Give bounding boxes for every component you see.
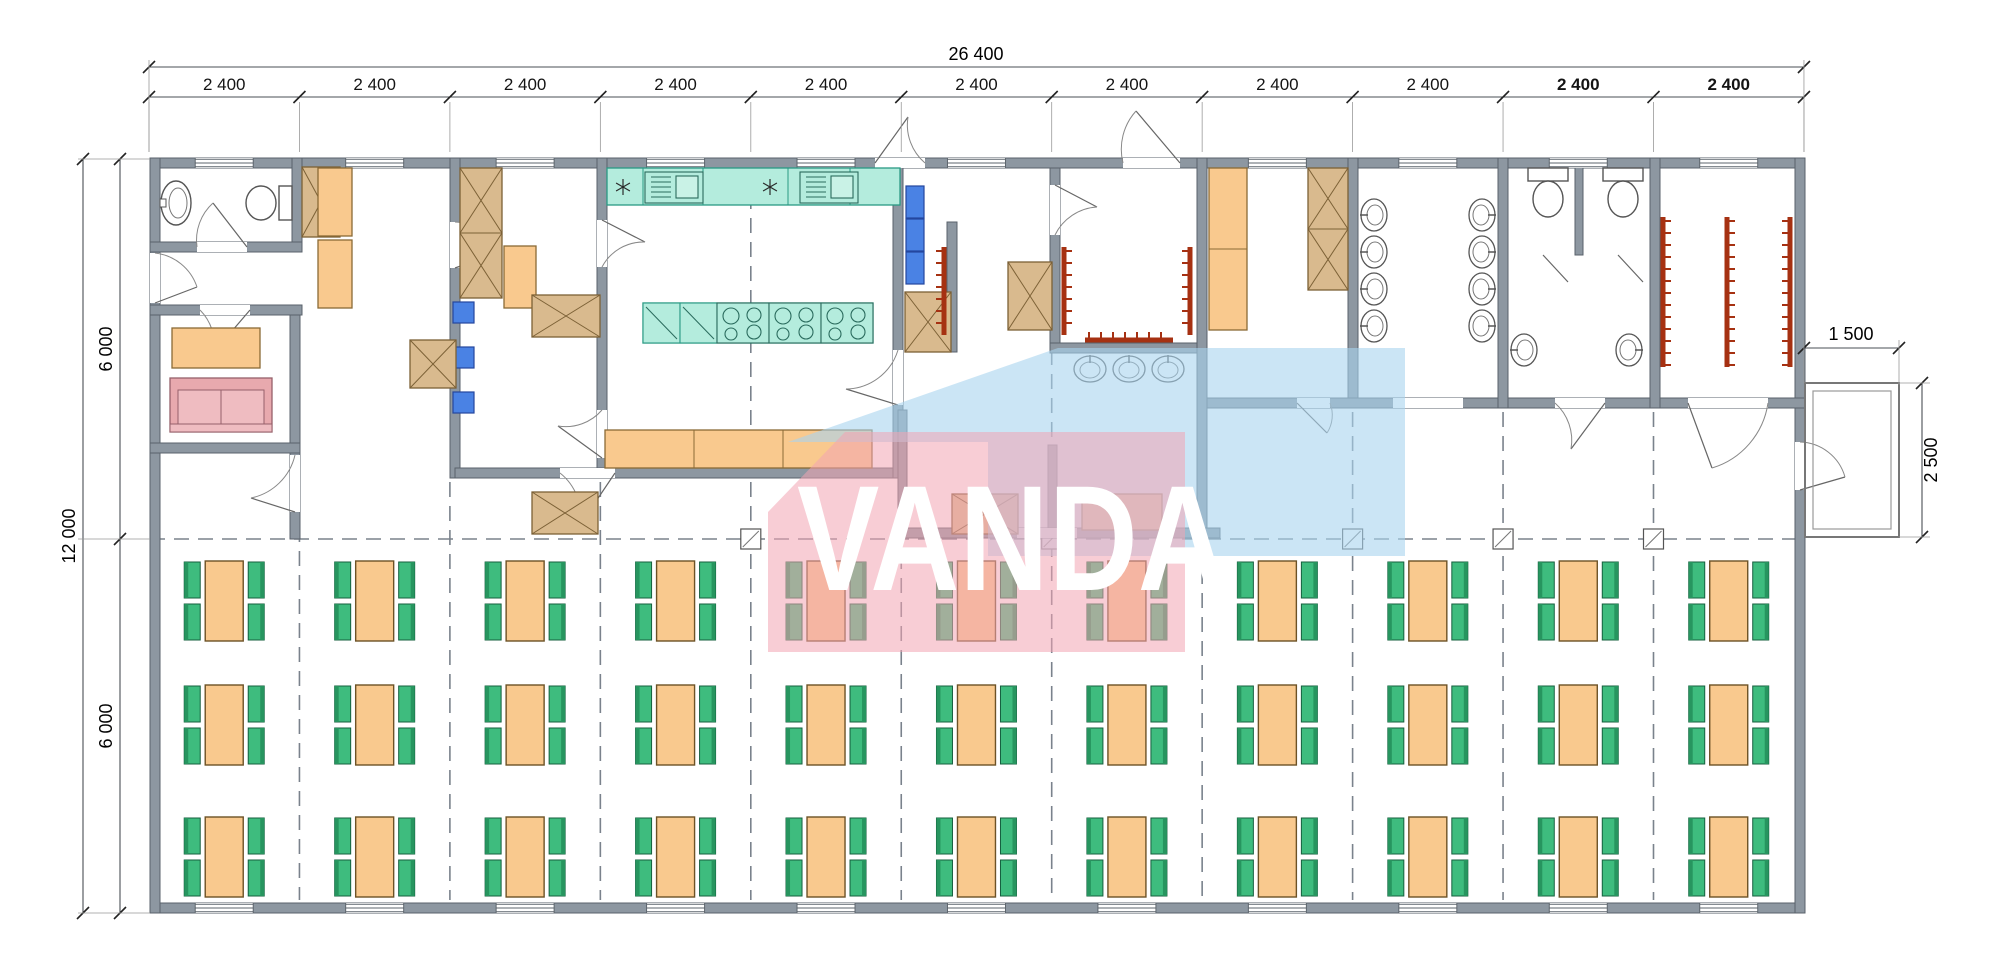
table-top (957, 685, 995, 765)
dim-porch-width-label: 1 500 (1828, 324, 1873, 344)
dining-table (485, 561, 565, 641)
column-post (1493, 529, 1513, 549)
dining-table (485, 817, 565, 897)
dim-bay-label: 2 400 (1256, 75, 1299, 94)
dining-table (1388, 561, 1468, 641)
dim-porch-depth-label: 2 500 (1921, 437, 1941, 482)
door-opening (290, 455, 300, 512)
dining-table (1689, 685, 1769, 765)
table-top (1258, 561, 1296, 641)
window (1248, 158, 1306, 168)
wardrobe-cabinet (410, 340, 456, 388)
table-top (1108, 685, 1146, 765)
wardrobe-cabinet (460, 168, 502, 298)
cooktop (769, 303, 821, 343)
table-top (205, 817, 243, 897)
table-top (506, 817, 544, 897)
coat-rack (1062, 247, 1073, 335)
dining-table (786, 817, 866, 897)
dining-table (335, 685, 415, 765)
floor-plan-drawing: VANDA 26 400 12 000 6 000 6 000 1 500 2 … (0, 0, 2000, 975)
door-leaf (1136, 111, 1180, 163)
kitchen-sink (645, 172, 703, 203)
door-leaf (251, 498, 295, 512)
table-top (1258, 685, 1296, 765)
washbasin (1360, 199, 1387, 231)
chair-blue (453, 302, 474, 323)
door-opening (197, 242, 247, 252)
window (1549, 158, 1607, 168)
dining-table (335, 817, 415, 897)
dim-bay-label: 2 400 (654, 75, 697, 94)
dining-table (1689, 561, 1769, 641)
dining-table (1237, 817, 1317, 897)
shelf-unit (906, 186, 924, 218)
door-leaf (1688, 403, 1712, 468)
bed (318, 240, 352, 308)
table-top (506, 685, 544, 765)
dining-table (936, 685, 1016, 765)
window (346, 158, 404, 168)
door-swing (1800, 442, 1845, 477)
dining-table (1538, 561, 1618, 641)
porch-outline (1805, 383, 1899, 537)
dim-total-width-label: 26 400 (948, 44, 1003, 64)
stall-door-leaf (1543, 255, 1568, 282)
table-top (205, 561, 243, 641)
door-leaf (213, 203, 247, 247)
table-top (356, 685, 394, 765)
table-top (1559, 817, 1597, 897)
dim-bay-label: 2 400 (203, 75, 246, 94)
locker (1209, 168, 1247, 330)
shelf-unit (906, 252, 924, 284)
window (496, 158, 554, 168)
washbasin (1469, 310, 1496, 342)
dining-table (1388, 817, 1468, 897)
cooktop (821, 303, 873, 343)
coat-rack (1661, 217, 1672, 367)
toilet (246, 186, 292, 220)
dim-bay-label: 2 400 (1707, 75, 1750, 94)
table-top (1409, 685, 1447, 765)
porch-inner (1813, 391, 1891, 529)
door-leaf (155, 287, 197, 303)
dining-table (1087, 817, 1167, 897)
dim-half-height-bottom-label: 6 000 (96, 703, 116, 748)
door-swing (155, 253, 197, 287)
table-top (356, 817, 394, 897)
dining-table (485, 685, 565, 765)
door-leaf (602, 220, 645, 242)
table-top (1409, 817, 1447, 897)
table-top (807, 817, 845, 897)
dim-bay-label: 2 400 (955, 75, 998, 94)
window (346, 903, 404, 913)
washbasin (1469, 199, 1496, 231)
window (947, 158, 1005, 168)
window (1098, 903, 1156, 913)
bed (504, 246, 536, 308)
coat-rack (1782, 217, 1793, 367)
window (1248, 903, 1306, 913)
door-swing (1055, 207, 1097, 235)
cooktop (717, 303, 769, 343)
door-opening (450, 222, 460, 268)
door-leaf (1571, 403, 1605, 449)
door-opening (1555, 398, 1605, 408)
dining-table (636, 561, 716, 641)
dining-table (636, 817, 716, 897)
table (172, 328, 260, 368)
table-top (1258, 817, 1296, 897)
door-opening (200, 305, 250, 315)
door-leaf (1055, 185, 1097, 207)
window (496, 903, 554, 913)
dining-table (184, 561, 264, 641)
door-swing (251, 455, 295, 498)
dining-table (1538, 817, 1618, 897)
window (647, 903, 705, 913)
table-top (506, 561, 544, 641)
wall (1498, 158, 1508, 408)
coat-rack (1725, 217, 1736, 367)
washbasin (1469, 236, 1496, 268)
watermark-text: VANDA (797, 454, 1227, 622)
door-opening (1123, 158, 1180, 168)
dining-table (335, 561, 415, 641)
dim-half-height-top-label: 6 000 (96, 326, 116, 371)
dim-bay-label: 2 400 (353, 75, 396, 94)
column-post (741, 529, 761, 549)
exterior-wall-right (1795, 158, 1805, 913)
window (1399, 903, 1457, 913)
wall (1575, 158, 1583, 255)
door-opening (875, 158, 925, 168)
table-top (356, 561, 394, 641)
dim-bay-label: 2 400 (1407, 75, 1450, 94)
table-top (657, 685, 695, 765)
window (1700, 903, 1758, 913)
table-top (1710, 817, 1748, 897)
dining-table (1087, 685, 1167, 765)
washbasin (1360, 310, 1387, 342)
wardrobe-cabinet (532, 295, 600, 337)
door-swing (846, 350, 898, 389)
sofa (170, 378, 272, 432)
table-top (807, 685, 845, 765)
washbasin (1616, 334, 1643, 366)
dim-bay-label: 2 400 (504, 75, 547, 94)
door-leaf (1800, 477, 1845, 490)
table-top (205, 685, 243, 765)
window (1399, 158, 1457, 168)
tap (160, 199, 166, 207)
dining-table (1237, 561, 1317, 641)
kitchen-sink (800, 172, 858, 203)
door-opening (597, 220, 607, 267)
door-opening (1795, 442, 1805, 490)
window (947, 903, 1005, 913)
table-top (1108, 817, 1146, 897)
window (1549, 903, 1607, 913)
door-swing (1121, 111, 1136, 163)
toilet (1603, 168, 1643, 217)
door-opening (1050, 185, 1060, 235)
washbasin (1360, 273, 1387, 305)
dim-bay-label: 2 400 (1557, 75, 1600, 94)
wall (150, 443, 300, 453)
bed (318, 168, 352, 236)
window (797, 158, 855, 168)
dining-table (936, 817, 1016, 897)
table-top (657, 561, 695, 641)
dining-table (1689, 817, 1769, 897)
door-leaf (846, 389, 898, 405)
dining-table (1388, 685, 1468, 765)
column-post (1644, 529, 1664, 549)
window (195, 903, 253, 913)
wall (292, 158, 302, 252)
door-opening (150, 253, 160, 303)
door-opening (560, 468, 615, 478)
door-opening (1688, 398, 1768, 408)
door-swing (602, 242, 645, 267)
dim-total-height-label: 12 000 (59, 508, 79, 563)
table-top (1710, 561, 1748, 641)
dining-table (786, 685, 866, 765)
washbasin (1469, 273, 1496, 305)
stall-door-leaf (1618, 255, 1643, 282)
door-swing (558, 410, 602, 427)
floor-plan-page: VANDA 26 400 12 000 6 000 6 000 1 500 2 … (0, 0, 2000, 975)
table-top (1710, 685, 1748, 765)
chair-blue (453, 392, 474, 413)
shelf-unit (906, 219, 924, 251)
wardrobe-cabinet (1008, 262, 1052, 330)
wardrobe-cabinet (1308, 168, 1348, 290)
dining-table (184, 685, 264, 765)
table-top (1559, 685, 1597, 765)
toilet (1528, 168, 1568, 217)
dining-table (184, 817, 264, 897)
coat-rack (1085, 332, 1173, 343)
washbasin (160, 181, 191, 225)
washbasin (1510, 334, 1537, 366)
window (195, 158, 253, 168)
kitchen-island (643, 303, 873, 343)
wall (1650, 158, 1660, 408)
door-leaf (558, 426, 602, 458)
table-top (957, 817, 995, 897)
door-swing (907, 117, 925, 163)
table-top (1409, 561, 1447, 641)
door-swing (1555, 403, 1572, 449)
dining-table (1538, 685, 1618, 765)
door-swing (1712, 403, 1768, 468)
coat-rack (1182, 247, 1193, 335)
table-top (1559, 561, 1597, 641)
dining-table (636, 685, 716, 765)
dim-bay-label: 2 400 (805, 75, 848, 94)
window (1700, 158, 1758, 168)
table-top (657, 817, 695, 897)
window (797, 903, 855, 913)
washbasin (1360, 236, 1387, 268)
dining-table (1237, 685, 1317, 765)
door-leaf (875, 117, 908, 163)
dim-bay-label: 2 400 (1106, 75, 1149, 94)
door-swing (197, 203, 213, 247)
wardrobe-cabinet (532, 492, 598, 534)
window (647, 158, 705, 168)
